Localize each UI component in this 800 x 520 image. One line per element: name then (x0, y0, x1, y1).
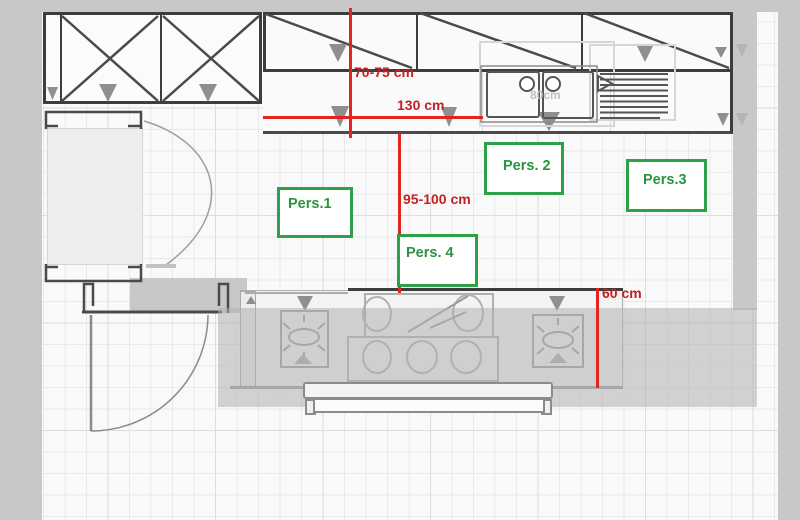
sink-size-watermark: 80cm (530, 88, 561, 102)
person-box-1: Pers.1 (277, 187, 353, 238)
left-door-jambs (46, 112, 141, 281)
bench-top (303, 382, 553, 399)
bottom-door-jamb-left (84, 284, 93, 313)
dimension-line-130 (263, 116, 483, 119)
dimension-label-130: 130 cm (397, 97, 444, 113)
floorplan-canvas: 80cm 70-75 cm 130 cm 95-100 cm 60 cm Per… (0, 0, 800, 520)
left-door-swing-arc (144, 121, 212, 265)
bench-seat (313, 398, 545, 413)
person-box-2: Pers. 2 (484, 142, 564, 195)
dimension-label-70-75: 70-75 cm (354, 64, 414, 80)
dimension-label-95-100: 95-100 cm (403, 191, 471, 207)
bottom-door-swing-arc (91, 315, 208, 431)
person-box-3: Pers.3 (626, 159, 707, 212)
bottom-door (82, 284, 228, 431)
person-label-4: Pers. 4 (400, 237, 475, 261)
person-box-4: Pers. 4 (397, 234, 478, 287)
person-label-3: Pers.3 (629, 162, 704, 188)
faint-wall-triangles (736, 44, 748, 126)
sink-drainboard (600, 74, 668, 118)
sink-arrow-icon (598, 76, 612, 91)
dimension-label-60: 60 cm (602, 285, 642, 301)
dimension-line-60 (596, 288, 599, 388)
tall-cabinet-x-fronts (62, 16, 259, 101)
person-label-2: Pers. 2 (487, 145, 561, 174)
wall-cabinet-diagonals (266, 13, 729, 68)
person-label-1: Pers.1 (280, 190, 350, 212)
